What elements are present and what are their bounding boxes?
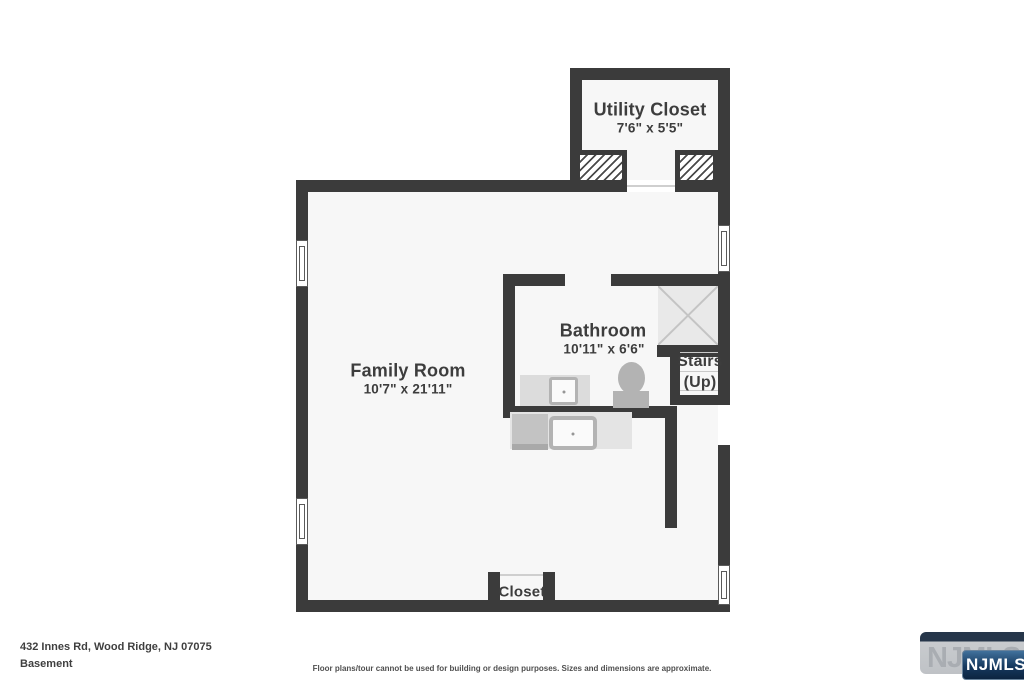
wall [611,274,730,286]
wall [570,68,730,80]
utility-closet-label: Utility Closet [594,100,707,121]
window-icon [296,498,308,545]
wall [503,274,515,418]
toilet-icon [613,391,649,408]
wall [670,395,730,405]
bathroom-label: Bathroom [560,321,647,342]
window-icon [718,225,730,272]
wall [718,68,730,180]
shower-icon [658,286,718,345]
wall [296,600,730,612]
window-icon [296,240,308,287]
family-room-dims: 10'7" x 21'11" [364,382,453,397]
floor-level-label: Basement [20,658,73,670]
stairs-label: Stairs [677,353,723,371]
washer-icon [512,444,548,450]
toilet-icon [618,362,645,394]
sink-icon [549,377,578,405]
stairs-direction-label: (Up) [684,374,717,392]
disclaimer-text: Floor plans/tour cannot be used for buil… [313,664,712,673]
window-icon [718,565,730,605]
utility-closet-dims: 7'6" x 5'5" [617,121,683,136]
stair-tread [680,371,718,372]
wall [665,418,677,528]
bathroom-dims: 10'11" x 6'6" [563,342,644,357]
floor-plan: Utility Closet 7'6" x 5'5" Family Room 1… [0,0,1024,682]
laundry-sink-icon [549,416,597,450]
wall [296,180,627,192]
njmls-logo: NJMLS NJMLS [920,628,1024,678]
washer-icon [512,414,548,444]
property-address: 432 Innes Rd, Wood Ridge, NJ 07075 [20,641,212,653]
door-opening-line [627,185,675,187]
closet-opening-line [500,574,543,576]
njmls-badge: NJMLS [962,650,1024,680]
closet-label: Closet [498,584,545,601]
family-room-label: Family Room [350,361,465,382]
